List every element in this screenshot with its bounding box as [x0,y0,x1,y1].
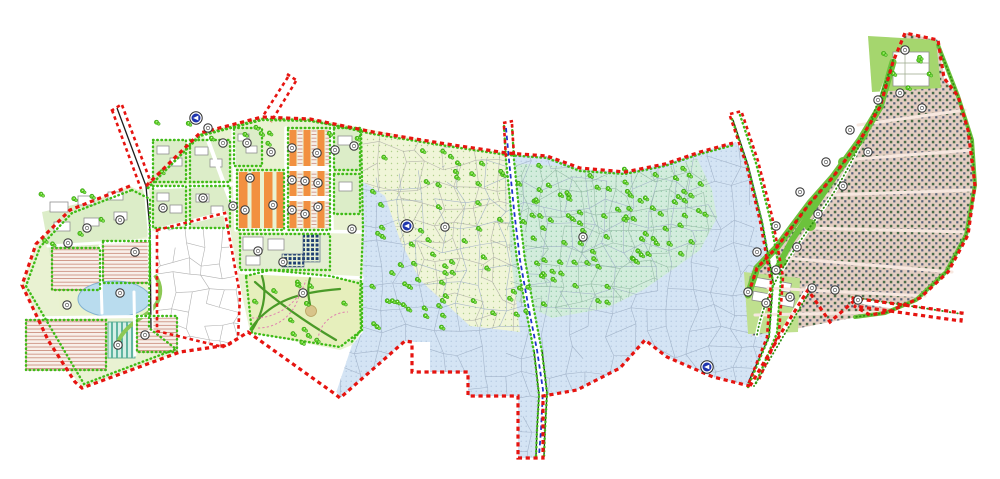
key-plan-marker [846,126,854,134]
building-footprint [246,256,260,265]
key-plan-marker [64,239,72,247]
key-plan-marker [896,89,904,97]
key-plan-marker [839,182,847,190]
key-plan-marker [579,233,587,241]
building-footprint [893,52,929,86]
key-plan-marker [772,266,780,274]
key-plan-marker [314,203,322,211]
key-plan-marker [246,174,254,182]
key-plan-marker [301,177,309,185]
key-plan-marker [918,104,926,112]
key-plan-marker [313,149,321,157]
key-plan-marker [141,331,149,339]
key-plan-marker [831,286,839,294]
housing-court-block [334,174,360,214]
building-footprint [195,147,208,155]
building-footprint [339,182,352,191]
direction-arrow-marker [701,361,713,373]
key-plan-marker [269,201,277,209]
key-plan-marker [116,289,124,297]
key-plan-marker [288,176,296,184]
key-plan-marker [241,206,249,214]
key-plan-marker [116,216,124,224]
key-plan-marker [814,210,822,218]
key-plan-marker [864,148,872,156]
key-plan-marker [267,148,275,156]
boundary-stub [271,81,296,122]
key-plan-marker [744,288,752,296]
street [134,292,135,355]
key-plan-marker [874,96,882,104]
key-plan-marker [331,146,339,154]
key-plan-marker [314,179,322,187]
key-plan-marker [83,224,91,232]
key-plan-marker [854,296,862,304]
key-plan-marker [229,202,237,210]
key-plan-marker [796,188,804,196]
building-footprint [157,193,169,201]
park-plaza [306,306,317,317]
key-plan-marker [131,248,139,256]
key-plan-marker [753,248,761,256]
direction-arrow-marker [401,220,413,232]
direction-arrow-marker [190,112,202,124]
site-plan-drawing [0,0,1000,479]
key-plan-marker [301,210,309,218]
key-plan-marker [822,158,830,166]
key-plan-marker [199,194,207,202]
row-housing-block [26,320,106,370]
master-plan-canvas [0,0,1000,479]
lake [78,281,150,317]
key-plan-marker [762,299,770,307]
key-plan-marker [243,139,251,147]
key-plan-marker [219,139,227,147]
key-plan-marker [299,289,307,297]
key-plan-marker [441,223,449,231]
key-plan-marker [793,243,801,251]
key-plan-marker [772,222,780,230]
north-stub-road [267,79,292,119]
row-housing-block [52,248,100,290]
key-plan-marker [288,206,296,214]
key-plan-marker [901,46,909,54]
key-plan-marker [204,124,212,132]
building-footprint [268,239,284,250]
key-plan-marker [114,341,122,349]
navy-parking-grid [303,231,320,262]
key-plan-marker [288,144,296,152]
boundary-stub-cap [730,111,742,114]
key-plan-marker [63,301,71,309]
key-plan-marker [279,258,287,266]
row-housing-block [103,241,150,283]
key-plan-marker [808,284,816,292]
key-plan-marker [350,142,358,150]
building-footprint [50,202,68,212]
building-footprint [170,205,182,213]
building-footprint [157,146,169,154]
boundary-stub [122,105,151,183]
key-plan-marker [786,293,794,301]
key-plan-marker [348,225,356,233]
boundary-stub [112,110,141,189]
key-plan-marker [159,204,167,212]
boundary-stub [263,77,288,116]
key-plan-marker [254,247,262,255]
